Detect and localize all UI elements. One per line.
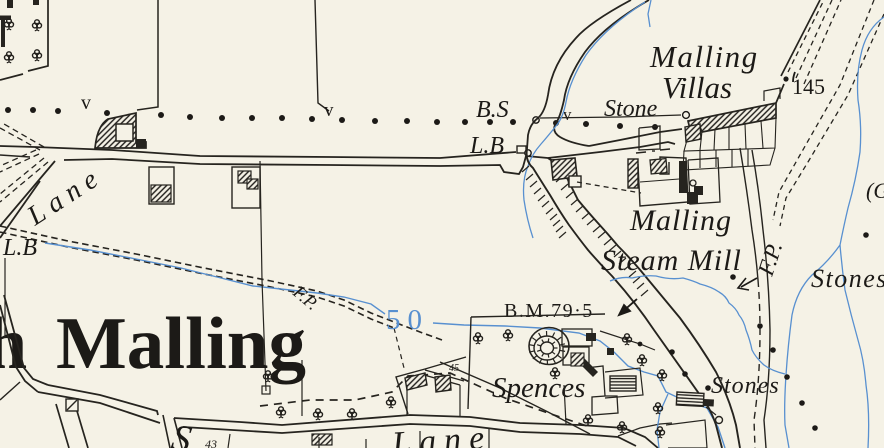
svg-text:B.M.79·5: B.M.79·5	[504, 300, 594, 322]
svg-text:v: v	[81, 92, 91, 114]
svg-text:Stones: Stones	[811, 264, 884, 293]
svg-text:B.S: B.S	[476, 97, 509, 123]
svg-text:145: 145	[792, 74, 825, 99]
svg-text:Malling: Malling	[629, 204, 732, 237]
svg-text:Stone: Stone	[604, 96, 658, 122]
svg-text:Villas: Villas	[662, 70, 732, 105]
svg-text:Stones: Stones	[711, 373, 780, 399]
svg-text:h: h	[0, 303, 27, 385]
svg-text:Steam Mill: Steam Mill	[601, 244, 742, 277]
svg-text:50: 50	[386, 304, 429, 336]
svg-text:(G: (G	[866, 178, 884, 203]
svg-text:Malling: Malling	[649, 39, 759, 74]
svg-text:L.B: L.B	[469, 133, 504, 159]
svg-text:v: v	[324, 100, 334, 121]
svg-text:43: 43	[205, 437, 217, 448]
svg-text:45: 45	[449, 363, 459, 374]
svg-text:L.B: L.B	[2, 235, 37, 261]
svg-text:Malling: Malling	[56, 303, 306, 385]
